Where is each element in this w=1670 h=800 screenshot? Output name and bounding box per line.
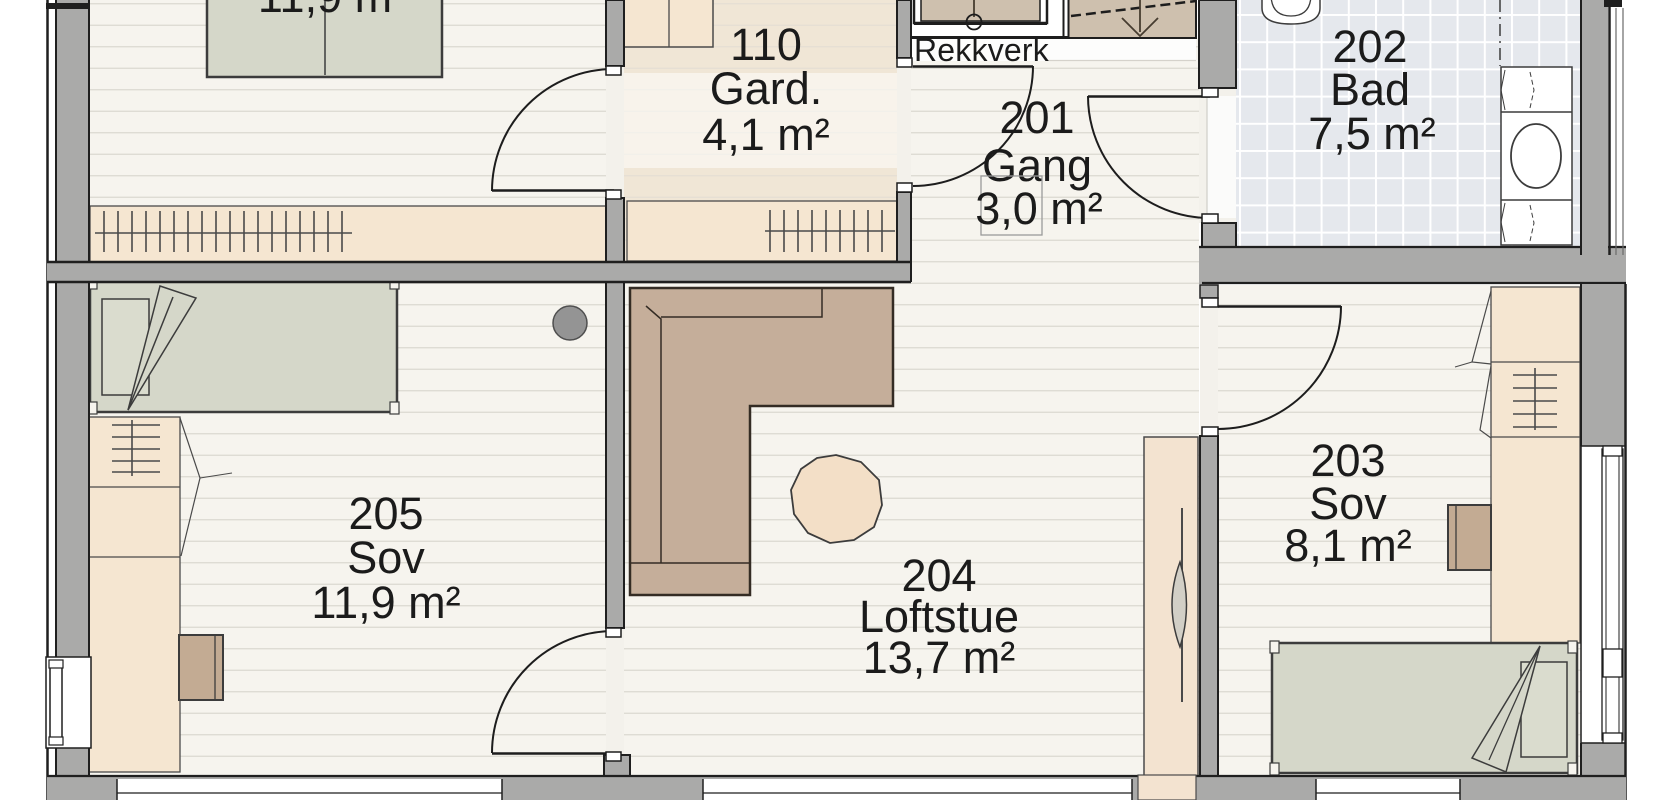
svg-text:13,7 m²: 13,7 m² (863, 632, 1016, 683)
svg-text:4,1 m²: 4,1 m² (702, 109, 830, 160)
svg-text:Sov: Sov (347, 532, 425, 583)
svg-text:11,9 m: 11,9 m (258, 0, 392, 22)
svg-text:11,9 m²: 11,9 m² (311, 577, 460, 628)
svg-text:Rekkverk: Rekkverk (914, 32, 1050, 68)
svg-text:3,0 m²: 3,0 m² (975, 183, 1103, 234)
svg-text:8,1 m²: 8,1 m² (1284, 520, 1412, 571)
svg-text:201: 201 (999, 92, 1074, 143)
svg-text:7,5 m²: 7,5 m² (1308, 108, 1436, 159)
svg-text:Gard.: Gard. (710, 63, 823, 114)
